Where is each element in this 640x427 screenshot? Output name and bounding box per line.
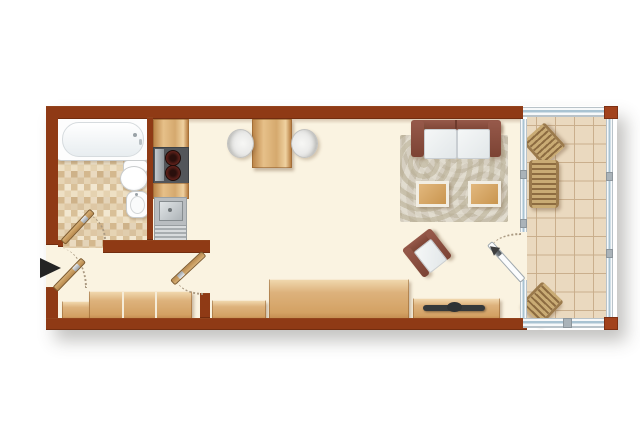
- sofa-arm-left: [411, 121, 424, 157]
- balcony-glazing-right: [606, 117, 613, 318]
- bidet-tap: [135, 193, 138, 196]
- burner-icon: [165, 150, 181, 166]
- wardrobe-divider: [122, 292, 124, 319]
- wall-hall-lower-stub: [200, 293, 210, 318]
- bidet-basin: [130, 196, 145, 214]
- wall-bathroom-right: [147, 117, 153, 240]
- tv-hub: [447, 302, 462, 312]
- glazing-mullion: [606, 249, 613, 258]
- kitchen-counter-upper: [153, 119, 189, 149]
- bathtub-drain: [139, 139, 142, 145]
- balcony-partition-lower: [520, 280, 527, 318]
- sink-drain: [168, 208, 172, 212]
- hall-wardrobe: [89, 291, 192, 320]
- sofa-center-seam: [455, 120, 457, 129]
- sofa-cushion-left: [424, 129, 457, 159]
- side-table-right: [468, 181, 501, 207]
- sideboard: [212, 300, 266, 320]
- bidet: [126, 191, 149, 218]
- side-table-left: [416, 181, 449, 207]
- chest: [269, 279, 409, 320]
- cooktop-panel: [155, 149, 164, 181]
- bathtub: [56, 117, 150, 161]
- wall-bottom: [46, 318, 527, 330]
- cooktop: [153, 147, 189, 185]
- glazing-mullion: [563, 318, 572, 328]
- balcony-post-top-right: [604, 106, 618, 119]
- wall-left-upper: [46, 106, 58, 245]
- sofa: [411, 120, 501, 157]
- bathtub-basin: [62, 122, 144, 157]
- glazing-mullion: [520, 219, 527, 228]
- glazing-mullion: [520, 170, 527, 179]
- kitchen-sink: [154, 197, 187, 226]
- balcony-post-bottom-right: [604, 317, 618, 330]
- dining-chair-right: [291, 129, 318, 158]
- glazing-mullion: [606, 172, 613, 181]
- toilet-bowl: [120, 166, 148, 191]
- wall-top: [46, 106, 523, 119]
- dining-table: [252, 119, 292, 168]
- sofa-cushion-right: [457, 129, 490, 159]
- wardrobe-divider: [155, 292, 157, 319]
- balcony-glazing-top: [523, 107, 605, 117]
- burner-icon: [165, 165, 181, 181]
- entrance-arrow: [40, 258, 61, 278]
- sun-lounger: [529, 160, 559, 208]
- floor-plan-canvas: [0, 0, 640, 427]
- wall-kitchen-bottom: [103, 240, 210, 253]
- bathtub-faucet: [133, 133, 137, 137]
- dining-chair-left: [227, 129, 254, 158]
